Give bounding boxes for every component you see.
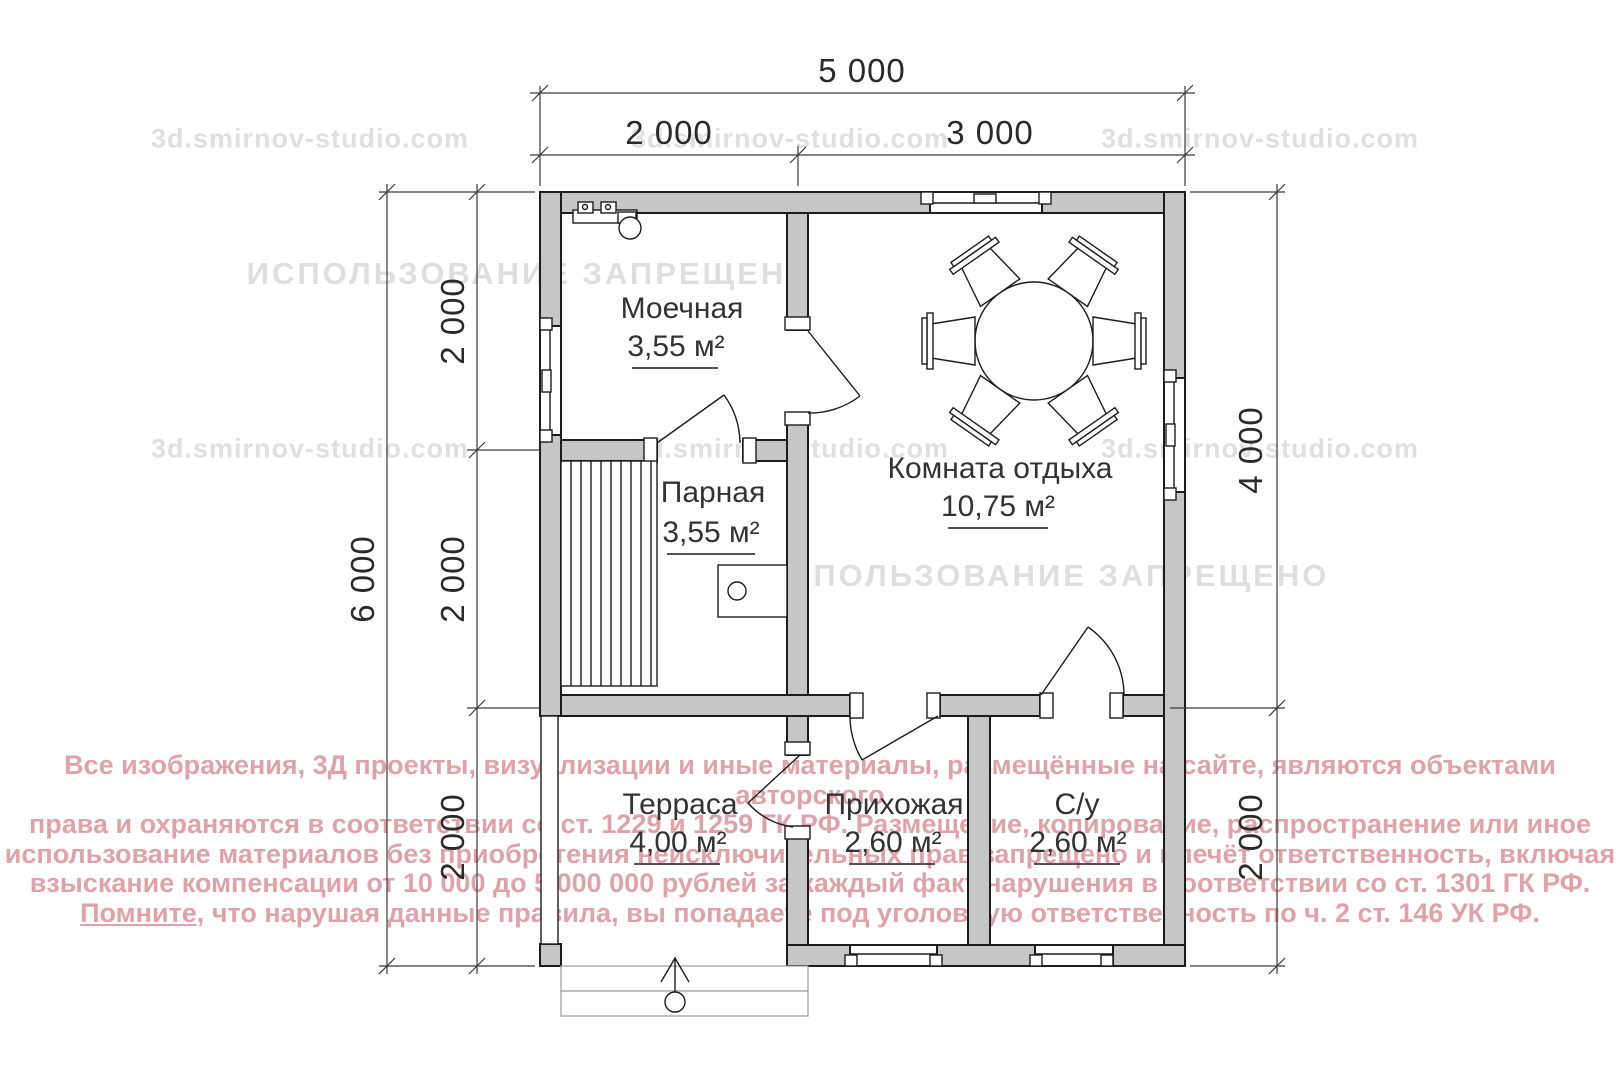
chair bbox=[922, 313, 975, 369]
room-bathroom-area: 2,60 м² bbox=[1029, 826, 1126, 859]
chair bbox=[1093, 313, 1146, 369]
door-terrace-hallway bbox=[748, 742, 810, 839]
dim-left-seg2: 2 000 bbox=[434, 535, 471, 623]
sauna-stove bbox=[718, 565, 787, 617]
dimension-left: 6 000 2 000 2 000 2 000 bbox=[344, 184, 540, 974]
room-label-washing: Моечная 3,55 м² bbox=[621, 292, 744, 368]
room-lounge-name: Комната отдыха bbox=[888, 452, 1113, 485]
room-washing-area: 3,55 м² bbox=[627, 330, 724, 363]
dim-left-seg3: 2 000 bbox=[434, 793, 471, 881]
door-lounge-hallway bbox=[850, 693, 940, 760]
dim-top-left: 2 000 bbox=[625, 114, 713, 151]
room-label-lounge: Комната отдыха 10,75 м² bbox=[888, 452, 1113, 528]
room-terrace-area: 4,00 м² bbox=[629, 826, 726, 859]
terrace-railing bbox=[541, 716, 558, 944]
window-lounge-top bbox=[921, 192, 1051, 213]
room-label-bathroom: С/у 2,60 м² bbox=[1029, 788, 1126, 864]
steam-benches bbox=[561, 461, 657, 686]
dim-top-right: 3 000 bbox=[946, 114, 1034, 151]
dimension-right: 4 000 2 000 bbox=[1170, 184, 1285, 974]
room-washing-name: Моечная bbox=[621, 292, 744, 325]
terrace-post bbox=[540, 944, 561, 966]
room-label-terrace: Терраса 4,00 м² bbox=[622, 788, 737, 864]
door-washing-steam bbox=[644, 395, 756, 463]
window-lounge-right bbox=[1164, 370, 1185, 500]
room-terrace-name: Терраса bbox=[622, 788, 737, 821]
room-hallway-area: 2,60 м² bbox=[844, 826, 941, 859]
floor-plan-drawing: 5 000 2 000 3 000 6 000 2 000 2 000 2 00… bbox=[0, 0, 1620, 1080]
room-label-steam: Парная 3,55 м² bbox=[661, 476, 765, 554]
floor-plan-canvas: 3d.smirnov-studio.com 3d.smirnov-studio.… bbox=[0, 0, 1620, 1080]
dim-top-total: 5 000 bbox=[818, 52, 906, 89]
room-steam-name: Парная bbox=[661, 476, 765, 509]
room-bathroom-name: С/у bbox=[1055, 788, 1100, 821]
room-lounge-area: 10,75 м² bbox=[941, 490, 1055, 523]
door-lounge-bathroom bbox=[1040, 627, 1124, 718]
dim-left-seg1: 2 000 bbox=[434, 277, 471, 365]
window-bathroom-bottom bbox=[1030, 945, 1113, 966]
window-washing-left bbox=[540, 318, 561, 442]
dimension-top: 5 000 2 000 3 000 bbox=[530, 52, 1195, 186]
dim-left-total: 6 000 bbox=[344, 535, 381, 623]
door-washing-lounge bbox=[785, 317, 860, 425]
room-hallway-name: Прихожая bbox=[824, 788, 963, 821]
dim-right-bottom: 2 000 bbox=[1232, 793, 1269, 881]
dim-right-top: 4 000 bbox=[1232, 406, 1269, 494]
dining-table bbox=[975, 282, 1093, 400]
window-hallway-bottom bbox=[845, 945, 942, 966]
room-steam-area: 3,55 м² bbox=[662, 516, 759, 549]
room-label-hallway: Прихожая 2,60 м² bbox=[824, 788, 963, 864]
